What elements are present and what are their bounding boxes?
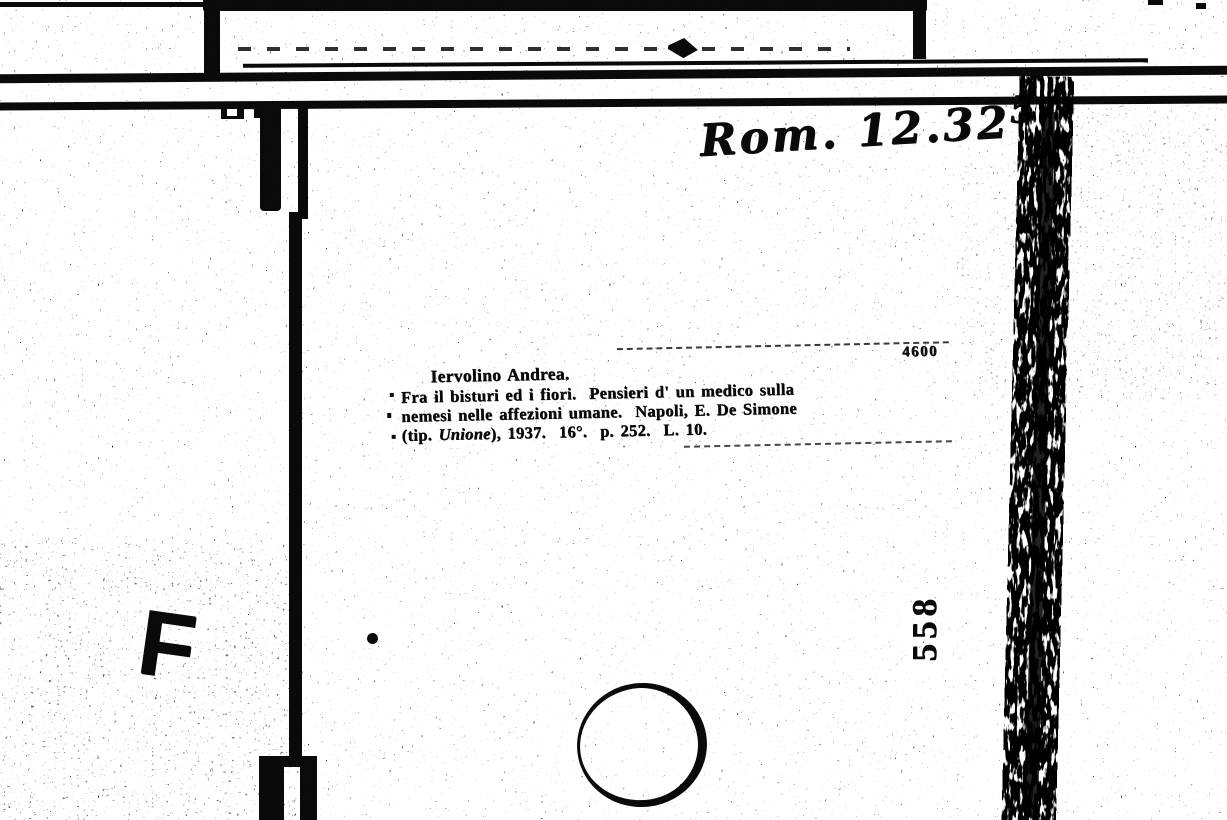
top-frame-left-post xyxy=(204,0,220,73)
imprint-pre: (tip. xyxy=(401,425,438,445)
letter-f-stamp: F xyxy=(131,594,241,710)
entry-number: 4600 xyxy=(902,343,938,361)
top-frame-right-post xyxy=(913,0,926,59)
rod-upper-left-bar xyxy=(260,107,281,211)
slip-margin-mark xyxy=(387,413,391,418)
dashed-rule-line xyxy=(238,47,850,51)
slip-top-dashed-edge xyxy=(617,341,949,350)
rod-middle-bar xyxy=(289,212,302,759)
rod-upper-right-bar xyxy=(298,107,308,219)
right-ragged-strip xyxy=(1010,111,1065,820)
top-right-ink-mark xyxy=(1148,0,1163,5)
staple-mark xyxy=(221,106,244,119)
imprint-post: ), 1937. 16°. p. 252. L. 10. xyxy=(490,419,707,443)
card-top-edge-line xyxy=(0,95,1227,110)
card-bottom-edge-line xyxy=(0,66,1227,84)
arrow-ink-blot xyxy=(667,36,699,59)
staple-hole xyxy=(227,109,237,116)
shelfmark-text: Rom. 12.32 xyxy=(698,97,1011,167)
punch-hole-circle xyxy=(569,675,715,816)
sequence-number-text: 558 xyxy=(905,594,945,662)
right-strip-core xyxy=(1025,112,1055,818)
catalog-slip: 4600 Iervolino Andrea. Fra il bisturi ed… xyxy=(392,343,956,459)
author-heading: Iervolino Andrea. xyxy=(430,363,569,387)
handwritten-shelfmark: Rom. 12.325 xyxy=(698,96,1022,185)
scanned-catalog-card: Rom. 12.325 4600 Iervolino Andrea. Fra i… xyxy=(0,0,1227,820)
top-right-ink-mark-2 xyxy=(1196,3,1206,9)
top-frame-left-bar xyxy=(0,2,214,7)
ink-dot xyxy=(367,633,378,644)
imprint-publisher: Unione xyxy=(438,424,491,444)
top-frame-main-bar xyxy=(203,0,927,11)
slip-margin-mark xyxy=(390,393,394,397)
vertical-sequence-number: 558 xyxy=(885,578,965,678)
shelfmark-raised-digit: 5 xyxy=(1008,86,1039,132)
slip-bottom-dashed-edge xyxy=(684,440,952,448)
rod-lower-right-bar xyxy=(300,765,317,820)
right-strip-ragged-texture xyxy=(1010,111,1065,820)
rod-lower-left-bar xyxy=(259,765,284,820)
slip-margin-mark xyxy=(392,435,396,439)
